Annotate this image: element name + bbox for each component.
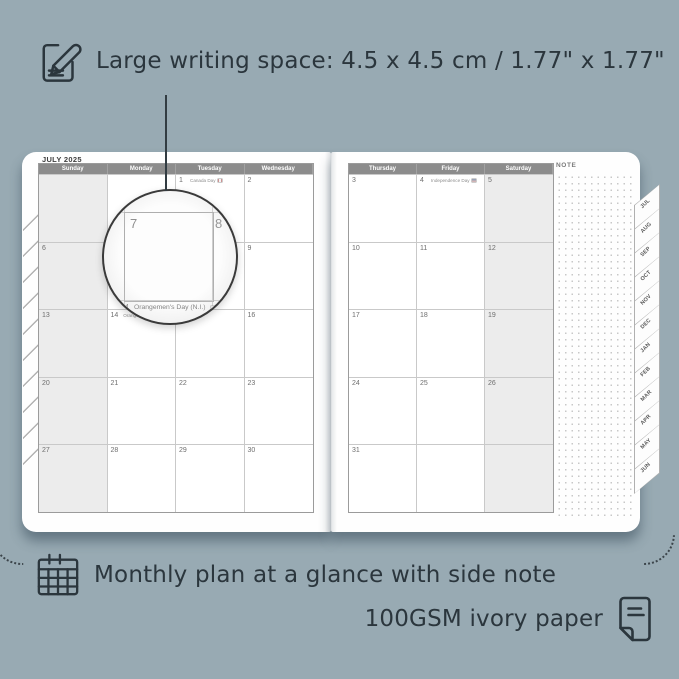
calendar-cell: 17: [349, 309, 417, 377]
us-flag-icon: [472, 179, 476, 182]
magnified-writing-cell: [124, 212, 214, 302]
day-number: 1: [179, 177, 185, 184]
day-number: 26: [488, 380, 496, 387]
calendar-cell: 18: [417, 309, 485, 377]
calendar-cell: 12: [485, 242, 553, 310]
day-header: Thursday: [349, 164, 417, 174]
calendar-cell: 22: [176, 377, 245, 445]
calendar-cell: 4Independence Day: [417, 174, 485, 242]
calendar-cell: 25: [417, 377, 485, 445]
day-number: 22: [179, 380, 187, 387]
calendar-cell: 31: [349, 444, 417, 512]
calendar-cell: 6: [39, 242, 108, 310]
day-number: 30: [248, 447, 256, 454]
day-number: 23: [248, 380, 256, 387]
pointer-line: [165, 95, 167, 191]
holiday-label: Canada Day: [190, 178, 222, 183]
note-label: NOTE: [556, 162, 576, 169]
calendar-cell: 29: [176, 444, 245, 512]
calendar-cell: 16: [245, 309, 314, 377]
day-number: 31: [352, 447, 360, 454]
calendar-cell: 9: [245, 242, 314, 310]
day-number: 20: [42, 380, 50, 387]
planner-spread: JULAUGSEPOCTNOVDECJANFEBMARAPRMAYJUN JUL…: [22, 152, 640, 532]
calendar-grid-icon: [34, 552, 82, 598]
monthly-plan-text: Monthly plan at a glance with side note: [94, 562, 556, 588]
day-number: 2: [248, 177, 254, 184]
note-dot-grid: [556, 174, 632, 516]
note-pencil-icon: [38, 36, 84, 86]
magnified-holiday-label: Orangemen's Day (N.I.): [134, 304, 206, 311]
day-number: 9: [248, 245, 254, 252]
calendar-cell: 27: [39, 444, 108, 512]
calendar-cell: 28: [108, 444, 177, 512]
day-number: 19: [488, 312, 496, 319]
day-number: 4: [420, 177, 426, 184]
day-number: 3: [352, 177, 358, 184]
bottom-annotation-1: Monthly plan at a glance with side note: [34, 552, 556, 598]
day-number: 25: [420, 380, 428, 387]
calendar-cell: 24: [349, 377, 417, 445]
calendar-cell: 20: [39, 377, 108, 445]
calendar-cell: 19: [485, 309, 553, 377]
day-number: 10: [352, 245, 360, 252]
calendar-cell: 26: [485, 377, 553, 445]
holiday-label: Independence Day: [431, 178, 476, 183]
day-number: 16: [248, 312, 256, 319]
canada-flag-icon: [218, 179, 222, 182]
day-number: 13: [42, 312, 50, 319]
day-number: 29: [179, 447, 187, 454]
magnified-day-8: 8: [215, 216, 222, 231]
magnified-day-number: 4: [124, 303, 128, 312]
day-number: 5: [488, 177, 494, 184]
large-writing-space-text: Large writing space: 4.5 x 4.5 cm / 1.77…: [96, 48, 665, 74]
calendar-cell: [39, 174, 108, 242]
paper-spec-text: 100GSM ivory paper: [365, 606, 603, 632]
planner-product-image: Large writing space: 4.5 x 4.5 cm / 1.77…: [0, 0, 679, 679]
day-number: 17: [352, 312, 360, 319]
calendar-cell: 30: [245, 444, 314, 512]
day-header: Wednesday: [245, 164, 314, 174]
day-header: Tuesday: [176, 164, 245, 174]
calendar-cell: 10: [349, 242, 417, 310]
bottom-annotation-2: 100GSM ivory paper: [365, 594, 655, 644]
magnifier-circle: 7 8 4 Orangemen's Day (N.I.): [102, 189, 238, 325]
calendar-cell: [417, 444, 485, 512]
day-number: 11: [420, 245, 427, 252]
top-annotation: Large writing space: 4.5 x 4.5 cm / 1.77…: [38, 36, 665, 86]
spine: [325, 152, 337, 532]
magnified-day-7: 7: [130, 216, 137, 231]
calendar-cell: [485, 444, 553, 512]
day-number: 27: [42, 447, 50, 454]
day-number: 6: [42, 245, 48, 252]
day-header: Saturday: [485, 164, 553, 174]
calendar-cell: 5: [485, 174, 553, 242]
calendar-cell: 23: [245, 377, 314, 445]
calendar-grid-right: ThursdayFridaySaturday34Independence Day…: [348, 163, 554, 513]
flag-icon: [211, 306, 216, 310]
day-header: Friday: [417, 164, 485, 174]
day-number: 12: [488, 245, 496, 252]
day-number: 28: [111, 447, 119, 454]
magnified-holiday-row: 4 Orangemen's Day (N.I.): [104, 303, 236, 312]
calendar-cell: 3: [349, 174, 417, 242]
day-header: Sunday: [39, 164, 108, 174]
day-number: 18: [420, 312, 428, 319]
day-number: 21: [111, 380, 119, 387]
paper-icon: [615, 594, 655, 644]
calendar-cell: 11: [417, 242, 485, 310]
day-number: 14: [111, 312, 119, 319]
calendar-cell: 2: [245, 174, 314, 242]
calendar-cell: 21: [108, 377, 177, 445]
calendar-cell: 13: [39, 309, 108, 377]
day-number: 24: [352, 380, 360, 387]
